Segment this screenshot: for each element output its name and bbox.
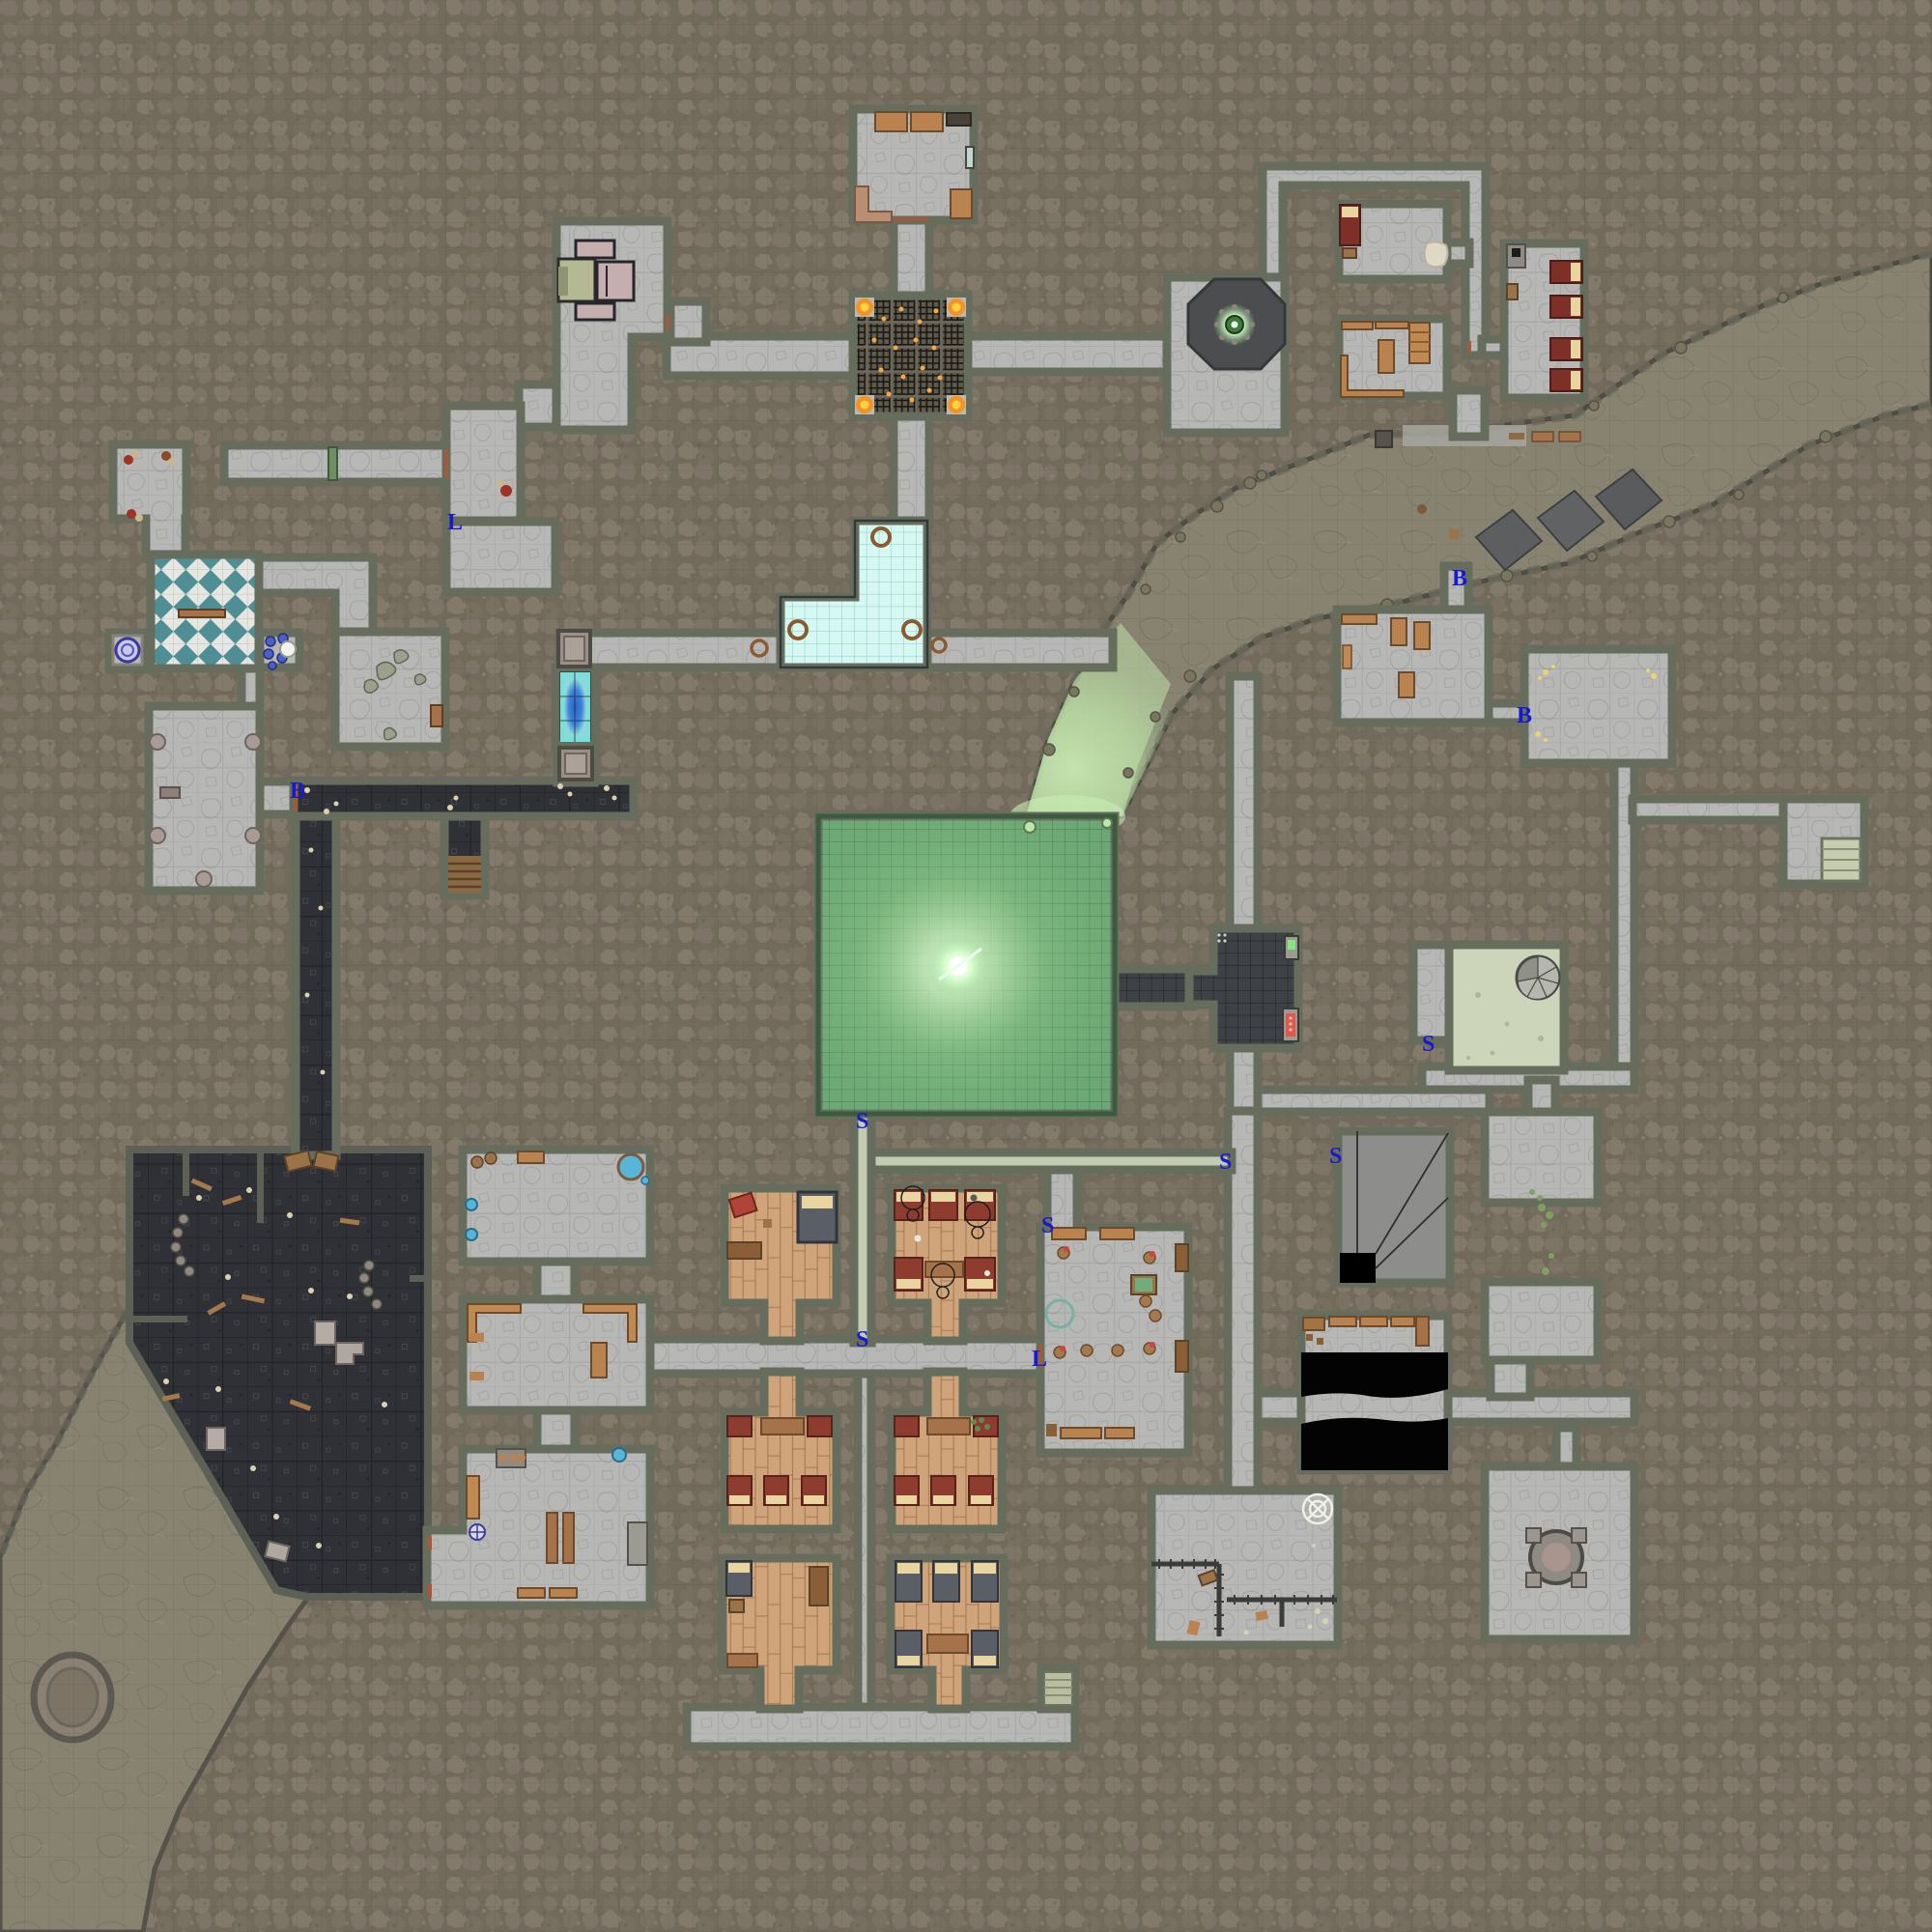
svg-text:L: L (1032, 1347, 1047, 1372)
svg-text:L: L (447, 510, 463, 535)
svg-text:B: B (290, 779, 305, 804)
svg-text:S: S (856, 1327, 868, 1352)
svg-text:S: S (1041, 1213, 1054, 1238)
svg-text:S: S (1422, 1032, 1435, 1057)
svg-text:B: B (1452, 566, 1467, 591)
svg-text:S: S (1329, 1144, 1342, 1169)
svg-text:S: S (1219, 1150, 1232, 1175)
svg-text:S: S (856, 1109, 868, 1134)
svg-text:B: B (1517, 703, 1532, 728)
